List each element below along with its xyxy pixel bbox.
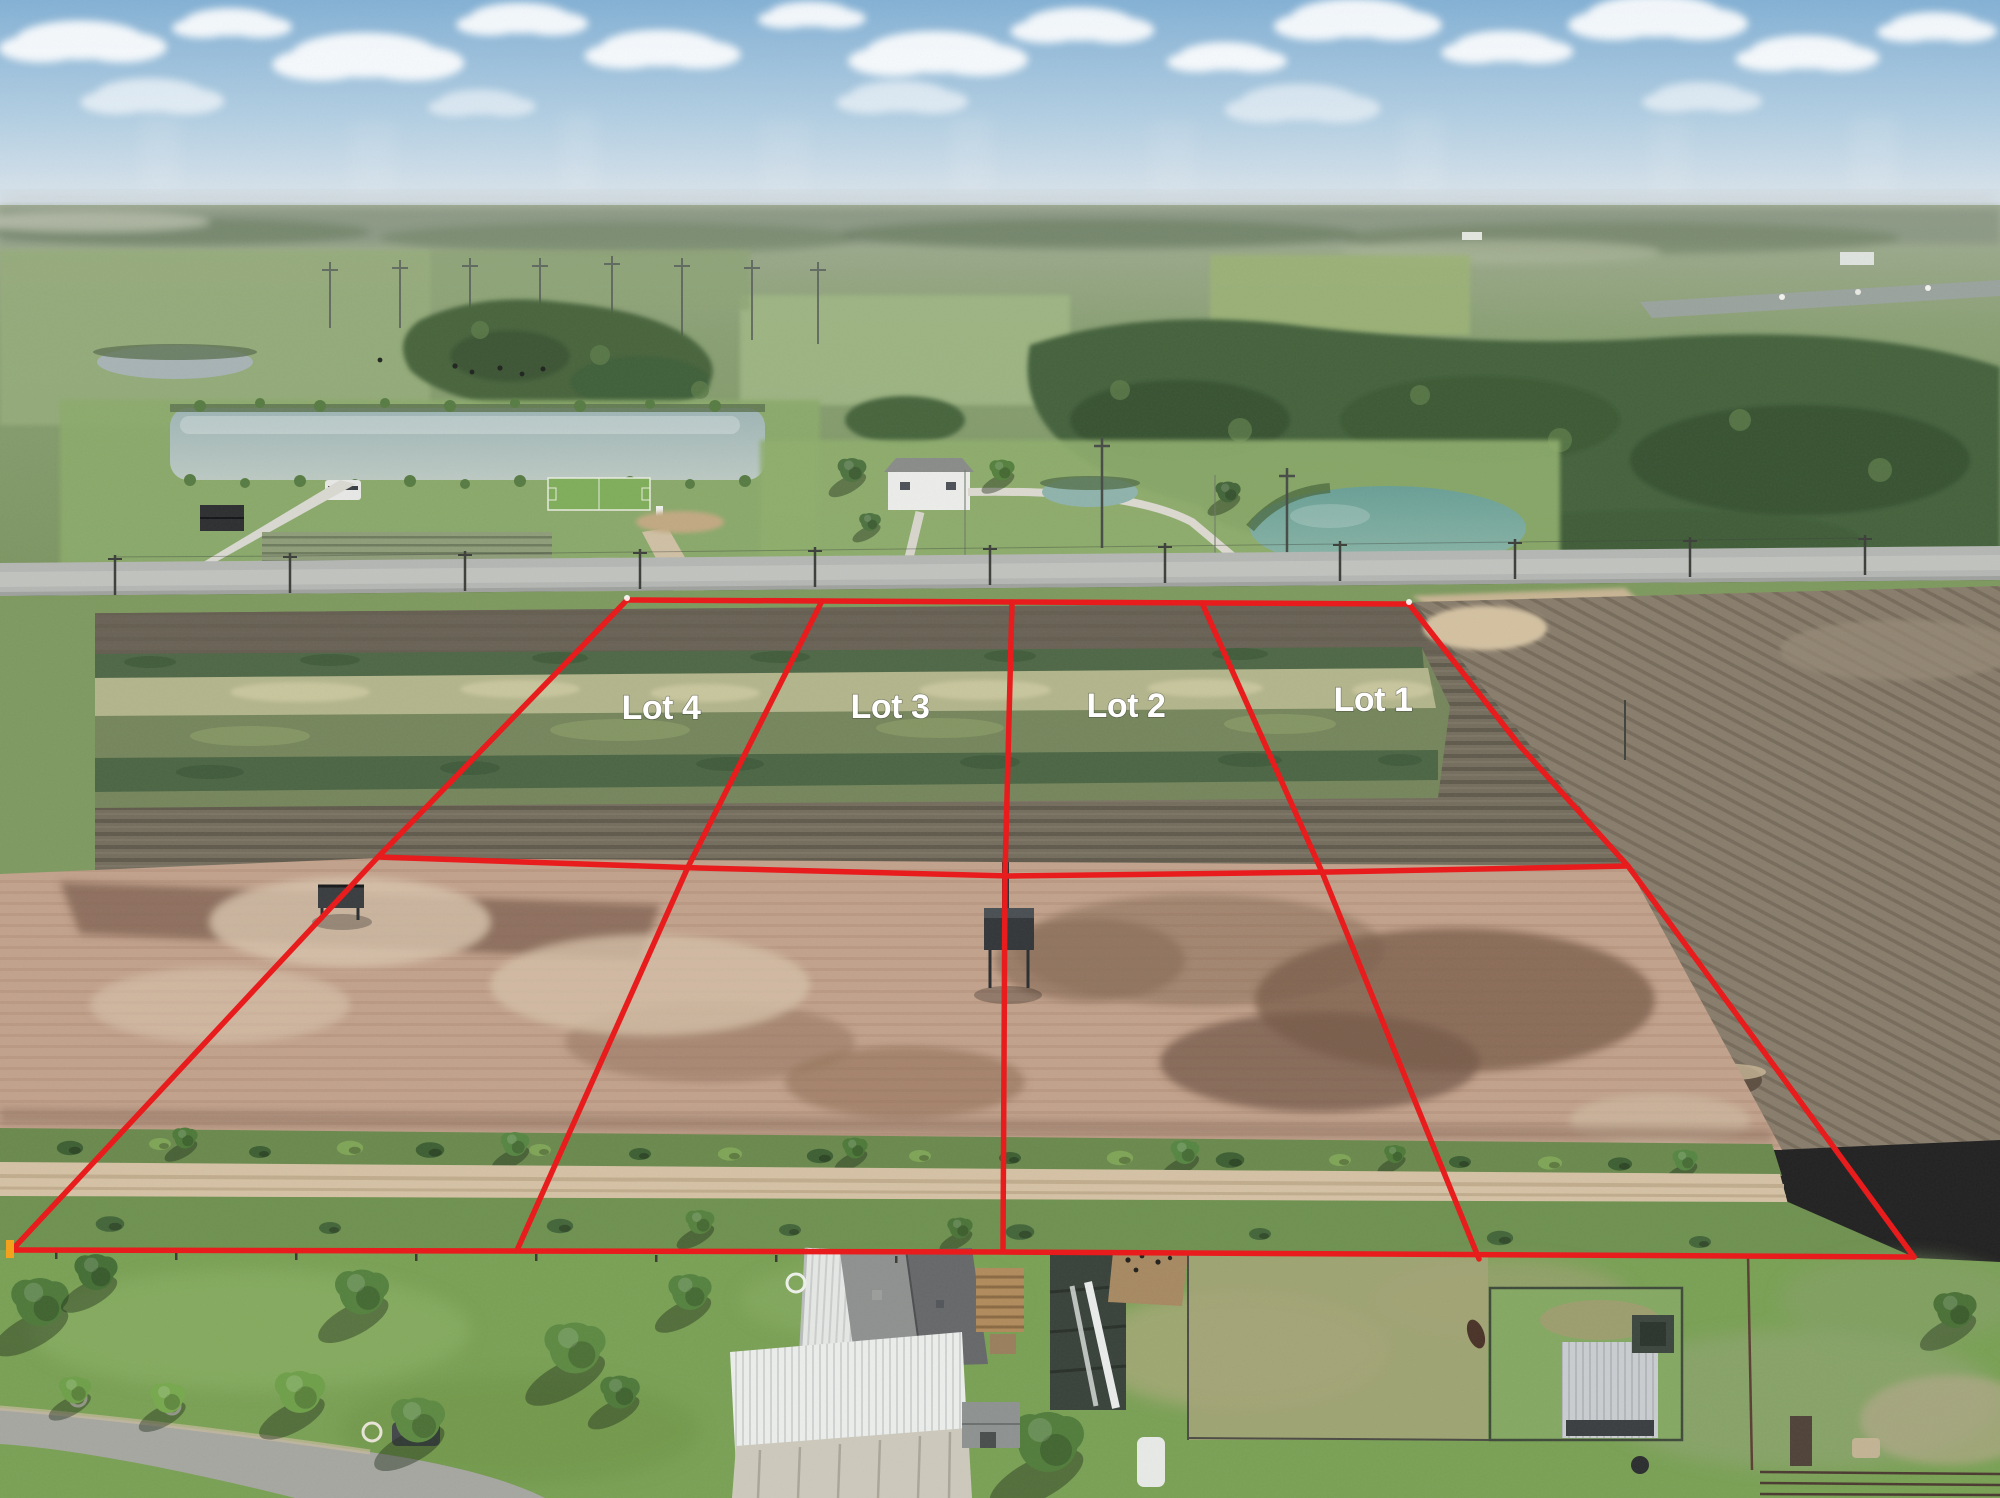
lot-label-3: Lot 3: [851, 688, 930, 726]
lot-label-2: Lot 2: [1087, 687, 1166, 725]
lot-label-1: Lot 1: [1334, 681, 1413, 719]
lot-label-4: Lot 4: [622, 689, 701, 727]
corner-marker: [6, 1240, 14, 1258]
aerial-lot-photo: Lot 4 Lot 3 Lot 2 Lot 1: [0, 0, 2000, 1498]
film-grain: [0, 0, 2000, 1498]
